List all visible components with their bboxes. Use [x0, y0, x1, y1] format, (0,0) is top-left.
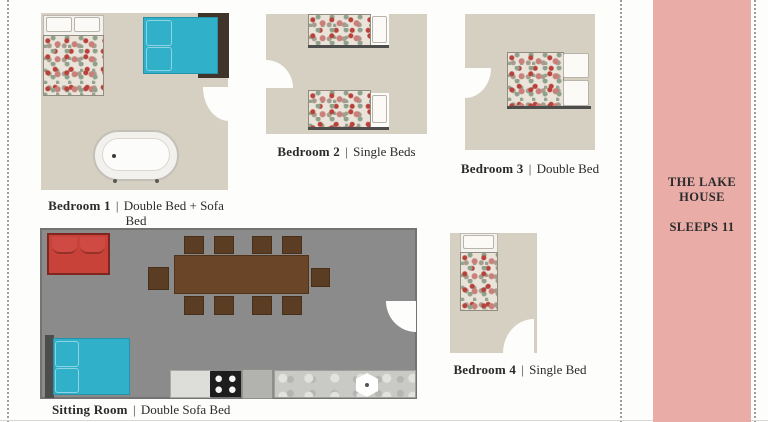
bedroom3-pillow-top [563, 53, 589, 78]
sitting-room-label-separator: | [131, 402, 138, 417]
kitchen-counter-slab [170, 370, 211, 398]
dining-chair-bottom-2 [214, 296, 234, 315]
dining-chair-top-2 [214, 236, 234, 254]
bedroom1-label-separator: | [114, 198, 121, 213]
sitting-room-label-description: Double Sofa Bed [141, 402, 231, 417]
dining-chair-end-right [311, 268, 330, 287]
panel-title-line1: THE LAKE [653, 175, 751, 190]
dotted-guide-left [7, 0, 9, 422]
bedroom2-label: Bedroom 2 | Single Beds [266, 144, 427, 159]
bedroom2-bed1-duvet [308, 14, 371, 46]
red-sofa-cushion-right [80, 237, 105, 254]
sink-drain [365, 383, 369, 387]
sitting-room-label: Sitting Room | Double Sofa Bed [52, 402, 412, 417]
stove-hob [210, 371, 241, 397]
dotted-guide-right [754, 0, 756, 422]
bedroom3-room [465, 14, 595, 150]
bedroom3-label-separator: | [527, 161, 534, 176]
bedroom1-room [41, 13, 228, 190]
red-sofa [47, 233, 110, 275]
lake-house-panel: THE LAKE HOUSE SLEEPS 11 [653, 0, 751, 422]
bathtub [93, 130, 179, 181]
bedroom2-bed2-duvet [308, 90, 371, 128]
bedroom4-label-name: Bedroom 4 [453, 362, 516, 377]
bedroom2-label-description: Single Beds [353, 144, 415, 159]
bedroom4-label-description: Single Bed [529, 362, 586, 377]
bedroom4-room [450, 233, 537, 353]
kitchen-appliance [242, 369, 273, 399]
red-sofa-cushion-left [52, 237, 77, 254]
bedroom1-pillow-left [46, 17, 72, 32]
bedroom4-pillow [463, 235, 494, 249]
dining-chair-top-3 [252, 236, 272, 254]
dining-chair-top-1 [184, 236, 204, 254]
bedroom1-sofa-frame-right [217, 13, 229, 78]
bathtub-foot-left [113, 179, 117, 183]
dotted-guide-middle [620, 0, 622, 422]
bedroom1-label-name: Bedroom 1 [48, 198, 111, 213]
bedroom1-sofa-cushion-2 [146, 47, 172, 71]
double-sofa-bed [53, 338, 130, 395]
bedroom2-bed2-frame [308, 127, 389, 130]
panel-title-line2: HOUSE [653, 190, 751, 205]
bedroom1-door-arc [203, 87, 229, 121]
bedroom3-bed-frame [507, 106, 591, 109]
sitting-room-door-arc [386, 301, 416, 332]
bedroom1-label-description: Double Bed + Sofa Bed [124, 198, 224, 228]
bathtub-foot-right [155, 179, 159, 183]
dining-chair-bottom-4 [282, 296, 302, 315]
bedroom4-label: Bedroom 4 | Single Bed [449, 362, 591, 377]
bedroom3-double-bed-duvet [507, 52, 564, 107]
dining-chair-top-4 [282, 236, 302, 254]
bathtub-drain [112, 154, 116, 158]
bedroom3-label-name: Bedroom 3 [461, 161, 524, 176]
bedroom1-label: Bedroom 1 | Double Bed + Sofa Bed [41, 198, 231, 228]
bedroom1-pillow-right [74, 17, 100, 32]
sitting-room [40, 228, 417, 399]
bedroom3-pillow-bottom [563, 80, 589, 106]
bedroom3-label-description: Double Bed [537, 161, 599, 176]
dining-chair-end-left [148, 267, 169, 290]
bedroom4-label-separator: | [519, 362, 526, 377]
bedroom2-label-name: Bedroom 2 [277, 144, 340, 159]
bedroom1-double-bed-duvet [43, 35, 104, 96]
kitchen-worktop [274, 370, 416, 398]
bedroom3-label: Bedroom 3 | Double Bed [460, 161, 600, 176]
bedroom2-bed1-frame [308, 45, 389, 48]
bedroom4-door-arc [503, 319, 534, 353]
bedroom2-door-arc [266, 60, 293, 88]
dining-table [174, 255, 309, 294]
dining-chair-bottom-3 [252, 296, 272, 315]
bedroom2-bed1-pillow [372, 16, 387, 43]
bedroom1-sofa-cushion-1 [146, 20, 172, 46]
bedroom1-sofa-bed [143, 17, 218, 74]
sitting-room-label-name: Sitting Room [52, 402, 128, 417]
sofa-bed-pillow-2 [55, 368, 79, 393]
sink [356, 373, 378, 397]
dining-chair-bottom-1 [184, 296, 204, 315]
bedroom2-room [266, 14, 427, 134]
sofa-bed-pillow-1 [55, 341, 79, 367]
floor-plan-canvas: Bedroom 1 | Double Bed + Sofa Bed Bedroo… [0, 0, 768, 422]
bedroom4-single-bed-duvet [460, 252, 498, 311]
bedroom2-bed2-pillow [372, 95, 387, 123]
panel-sleeps-text: SLEEPS 11 [653, 220, 751, 235]
bedroom3-door-arc [465, 68, 491, 98]
bedroom2-label-separator: | [343, 144, 350, 159]
